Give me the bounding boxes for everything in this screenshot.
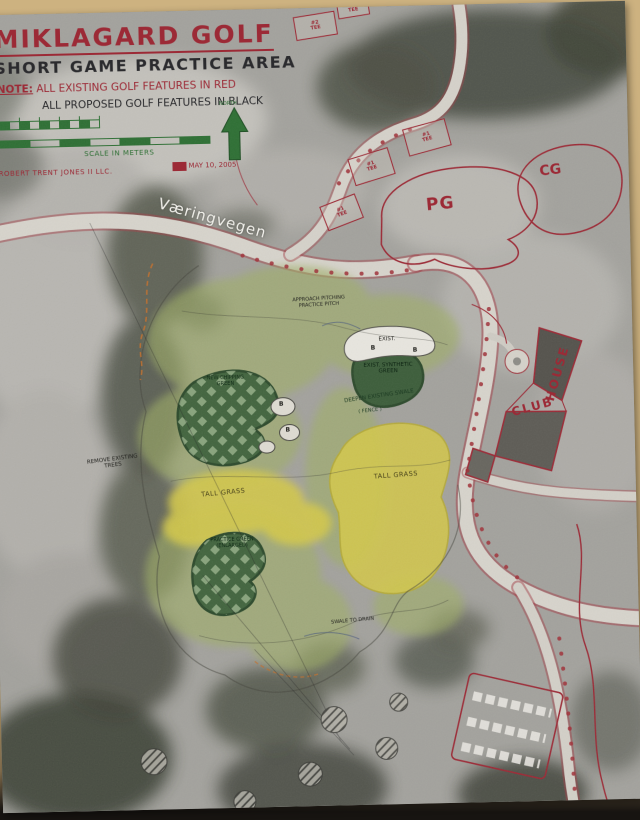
north-label: NORTH (219, 101, 237, 107)
bunker-mark: B (279, 401, 284, 408)
tee-box-label: #1 TEE (331, 204, 352, 221)
bunker-mark: B (413, 347, 418, 354)
upper-green-label: NEW CHIPPING GREEN (199, 375, 251, 388)
bunker-mark: B (285, 427, 290, 434)
date-highlight (172, 162, 186, 171)
scale-label: SCALE IN METERS (84, 149, 154, 159)
tee-box-label: #2 TEE (343, 1, 363, 15)
existing-bunker-label: EXIST. (378, 336, 395, 342)
plan-photo: MIKLAGARD GOLF SHORT GAME PRACTICE AREA … (0, 0, 640, 820)
note-label: NOTE: (0, 83, 33, 96)
tee-box-label: #1 TEE (361, 159, 381, 175)
chipping-green-label: CG (539, 161, 563, 180)
plan-date: MAY 10, 2005 (188, 161, 236, 170)
synthetic-green-label: EXIST. SYNTHETIC GREEN (361, 362, 415, 376)
practice-green-label: PG (425, 193, 455, 216)
lower-green-label: PRACTICE GREEN (ENLARGED) (207, 537, 257, 550)
tee-box-label: #1 TEE (417, 130, 437, 145)
plan-title: MIKLAGARD GOLF (0, 19, 274, 57)
bunker-mark: B (371, 345, 376, 352)
site-plan-paper: MIKLAGARD GOLF SHORT GAME PRACTICE AREA … (0, 1, 640, 813)
tee-box-label: #2 TEE (306, 19, 326, 33)
